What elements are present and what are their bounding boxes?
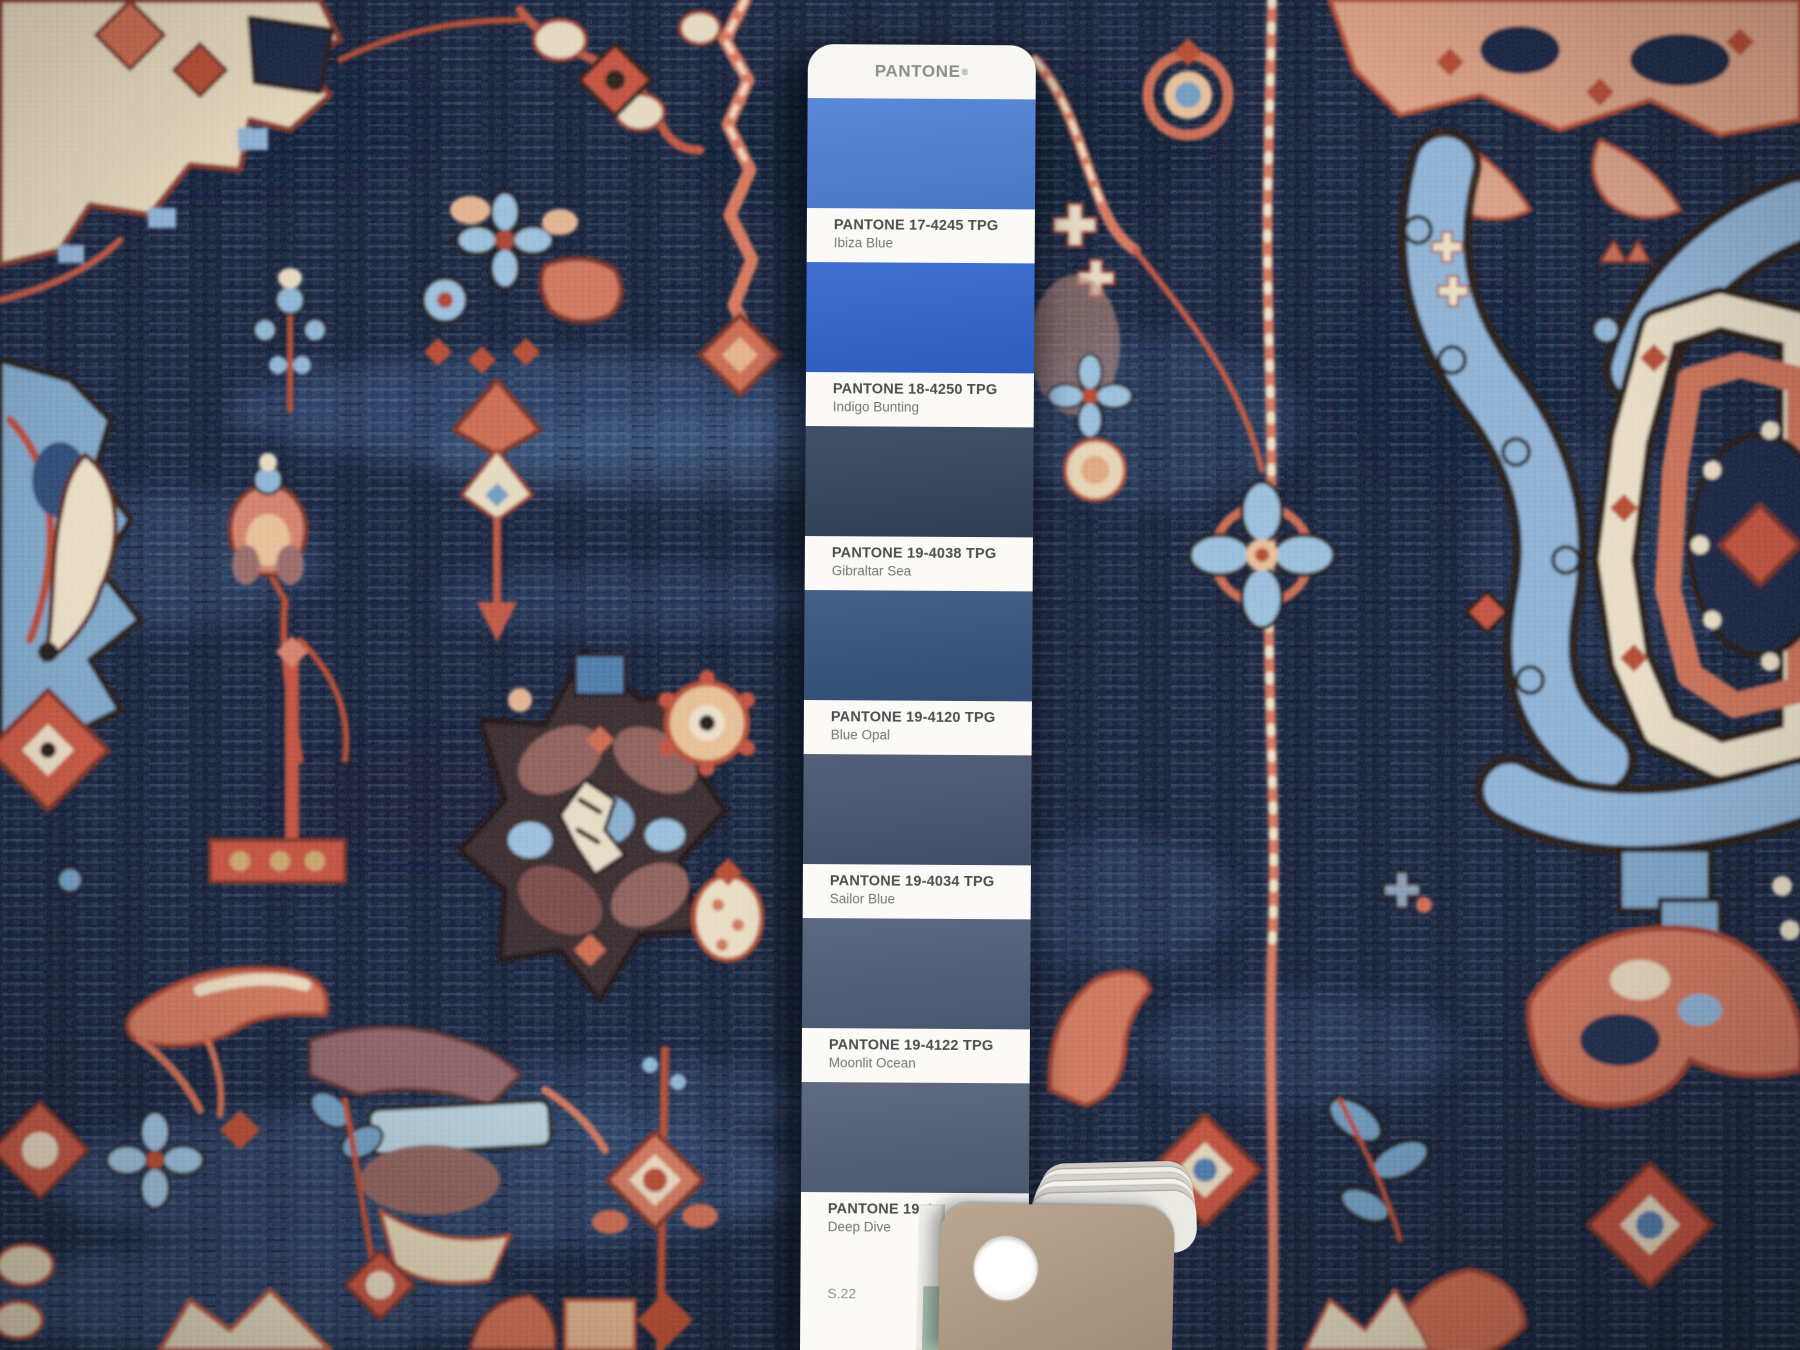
swatch-section: PANTONE 19-4122 TPG Moonlit Ocean <box>802 918 1031 1083</box>
tan-top-card <box>938 1202 1175 1350</box>
color-swatch-indigo-bunting <box>806 262 1035 373</box>
swatch-name: Ibiza Blue <box>834 234 1035 252</box>
swatch-section: PANTONE 19-4034 TPG Sailor Blue <box>803 754 1032 919</box>
swatch-label: PANTONE 19-4034 TPG Sailor Blue <box>803 864 1031 919</box>
swatch-code: PANTONE 17-4245 TPG <box>834 216 1035 235</box>
swatch-code: PANTONE 19-4034 TPG <box>830 872 1031 891</box>
swatch-name: Moonlit Ocean <box>829 1054 1030 1072</box>
swatch-name: Sailor Blue <box>830 890 1031 908</box>
color-swatch-blue-opal <box>804 590 1033 701</box>
color-swatch-gibraltar-sea <box>805 426 1034 537</box>
color-swatch-moonlit-ocean <box>802 918 1031 1029</box>
swatch-code: PANTONE 19-4120 TPG <box>831 708 1032 727</box>
swatch-name: Gibraltar Sea <box>832 562 1033 580</box>
swatch-section: PANTONE 19-4120 TPG Blue Opal <box>804 590 1033 755</box>
photo-scene: PANTONE® PANTONE 17-4245 TPG Ibiza Blue … <box>0 0 1800 1350</box>
swatch-section: PANTONE 19-4038 TPG Gibraltar Sea <box>805 426 1034 591</box>
swatch-label: PANTONE 19-4122 TPG Moonlit Ocean <box>802 1028 1030 1083</box>
swatch-label: PANTONE 17-4245 TPG Ibiza Blue <box>807 208 1035 263</box>
swatch-code: PANTONE 19-4122 TPG <box>829 1036 1030 1055</box>
swatch-label: PANTONE 19-4120 TPG Blue Opal <box>804 700 1032 755</box>
pantone-fan-deck-strip: PANTONE® PANTONE 17-4245 TPG Ibiza Blue … <box>800 44 1036 1350</box>
swatch-name: Blue Opal <box>831 726 1032 744</box>
swatch-code: PANTONE 18-4250 TPG <box>833 380 1034 399</box>
swatch-label: PANTONE 19-4038 TPG Gibraltar Sea <box>805 536 1033 591</box>
pantone-brand-text: PANTONE <box>875 61 961 82</box>
swatch-code: PANTONE 19-4038 TPG <box>832 544 1033 563</box>
swatch-name: Indigo Bunting <box>833 398 1034 416</box>
color-swatch-sailor-blue <box>803 754 1032 865</box>
registered-trademark-symbol: ® <box>962 67 969 77</box>
color-swatch-ibiza-blue <box>807 98 1036 209</box>
swatch-section: PANTONE 18-4250 TPG Indigo Bunting <box>806 262 1035 427</box>
pantone-logo: PANTONE® <box>808 44 1036 99</box>
teal-card-edge <box>922 1286 939 1350</box>
swatch-section: PANTONE 17-4245 TPG Ibiza Blue <box>807 98 1036 263</box>
binding-hole-icon <box>973 1235 1038 1300</box>
fan-deck-card-stack <box>914 1158 1188 1350</box>
swatch-label: PANTONE 18-4250 TPG Indigo Bunting <box>806 372 1034 427</box>
